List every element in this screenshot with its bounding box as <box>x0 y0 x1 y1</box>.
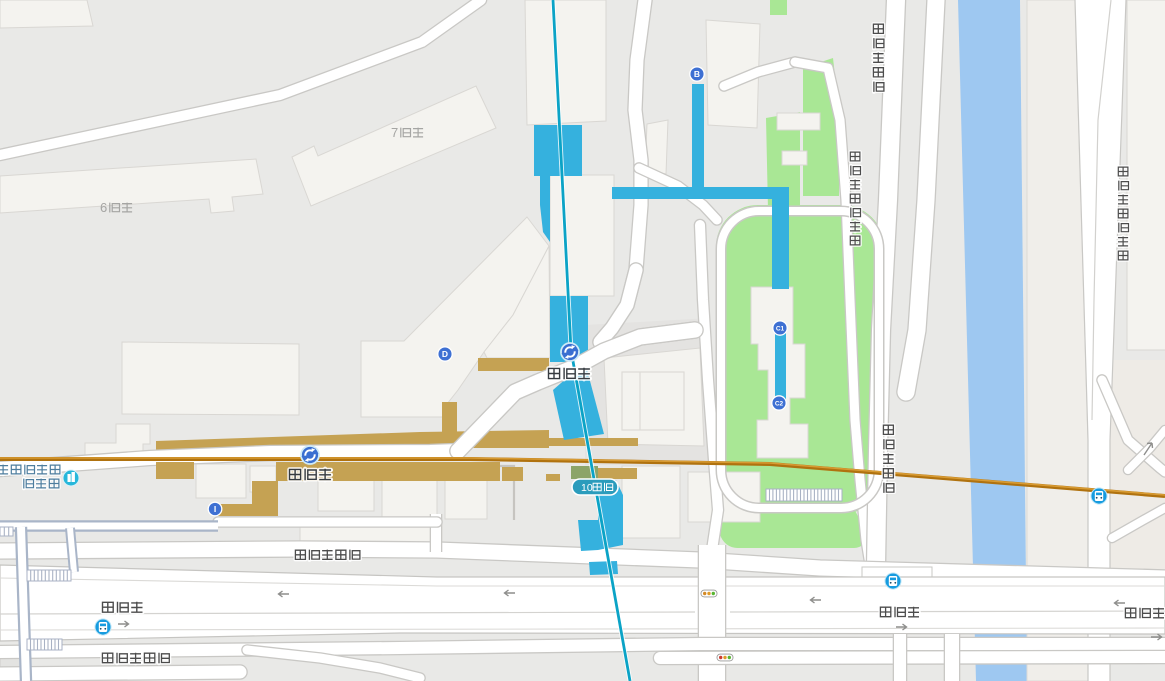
svg-text:10: 10 <box>581 482 593 494</box>
svg-text:B: B <box>694 69 700 79</box>
svg-text:D: D <box>442 349 448 359</box>
svg-text:C1: C1 <box>776 325 785 332</box>
svg-text:I: I <box>214 504 216 514</box>
svg-text:C2: C2 <box>775 400 784 407</box>
svg-text:6: 6 <box>100 200 107 215</box>
svg-text:7: 7 <box>391 125 398 140</box>
